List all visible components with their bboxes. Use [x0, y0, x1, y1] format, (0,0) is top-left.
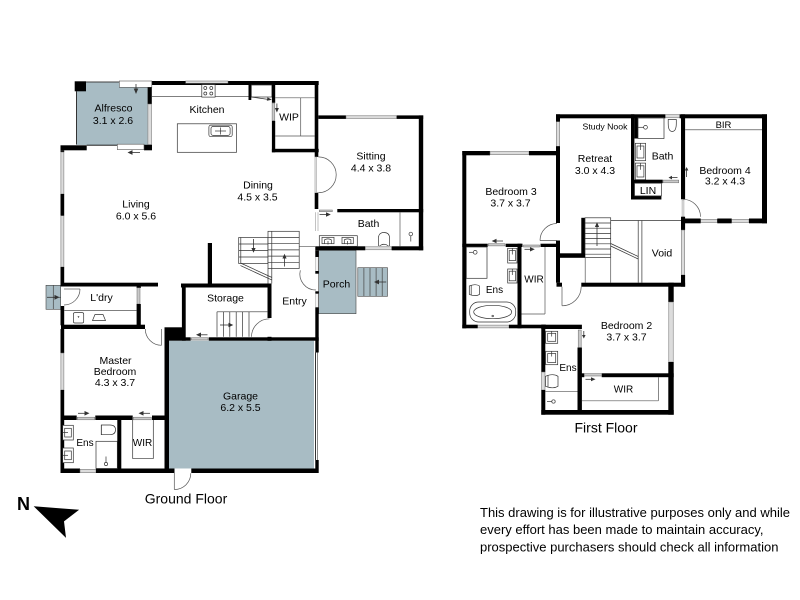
- svg-text:Porch: Porch: [323, 279, 351, 291]
- svg-text:First Floor: First Floor: [575, 420, 638, 436]
- svg-text:This drawing is for illustrati: This drawing is for illustrative purpose…: [480, 505, 790, 520]
- svg-text:every effort has been made to: every effort has been made to maintain a…: [480, 522, 764, 537]
- svg-text:WIR: WIR: [133, 438, 152, 449]
- svg-text:Study Nook: Study Nook: [583, 121, 629, 131]
- svg-text:N: N: [17, 494, 30, 514]
- svg-text:WIR: WIR: [524, 275, 543, 286]
- svg-text:Sitting: Sitting: [356, 151, 385, 163]
- svg-text:3.2 x 4.3: 3.2 x 4.3: [705, 176, 745, 188]
- svg-text:Retreat: Retreat: [578, 153, 613, 165]
- svg-text:Storage: Storage: [207, 293, 244, 305]
- svg-text:3.7 x 3.7: 3.7 x 3.7: [490, 198, 530, 210]
- svg-text:4.5 x 3.5: 4.5 x 3.5: [237, 192, 277, 204]
- svg-text:Entry: Entry: [282, 296, 307, 308]
- svg-text:6.0 x 5.6: 6.0 x 5.6: [116, 211, 156, 223]
- svg-text:WIP: WIP: [279, 112, 299, 124]
- svg-text:prospective purchasers should: prospective purchasers should check all …: [480, 539, 778, 554]
- svg-text:3.1 x 2.6: 3.1 x 2.6: [93, 115, 133, 127]
- svg-text:Ens: Ens: [559, 363, 576, 374]
- svg-text:Kitchen: Kitchen: [189, 104, 224, 116]
- svg-text:Bedroom 3: Bedroom 3: [485, 186, 537, 198]
- svg-text:Bath: Bath: [652, 151, 674, 163]
- svg-text:LIN: LIN: [640, 185, 656, 197]
- svg-text:BIR: BIR: [716, 120, 732, 131]
- svg-text:Alfresco: Alfresco: [95, 103, 133, 115]
- svg-text:6.2 x 5.5: 6.2 x 5.5: [220, 402, 260, 414]
- svg-text:WIR: WIR: [614, 384, 633, 395]
- svg-text:3.0 x 4.3: 3.0 x 4.3: [575, 165, 615, 177]
- svg-text:Void: Void: [652, 248, 673, 260]
- svg-text:4.3 x 3.7: 4.3 x 3.7: [95, 377, 135, 389]
- svg-text:Ground Floor: Ground Floor: [145, 490, 228, 506]
- svg-text:Bedroom 2: Bedroom 2: [601, 320, 653, 332]
- svg-text:Ens: Ens: [76, 438, 93, 449]
- svg-text:Living: Living: [122, 199, 150, 211]
- svg-text:L'dry: L'dry: [90, 292, 113, 304]
- svg-text:Ens: Ens: [486, 285, 503, 296]
- svg-text:Bath: Bath: [358, 218, 380, 230]
- svg-text:Garage: Garage: [223, 391, 258, 403]
- svg-text:Dining: Dining: [243, 180, 273, 192]
- svg-text:4.4 x 3.8: 4.4 x 3.8: [351, 163, 391, 175]
- svg-text:3.7 x 3.7: 3.7 x 3.7: [606, 332, 646, 344]
